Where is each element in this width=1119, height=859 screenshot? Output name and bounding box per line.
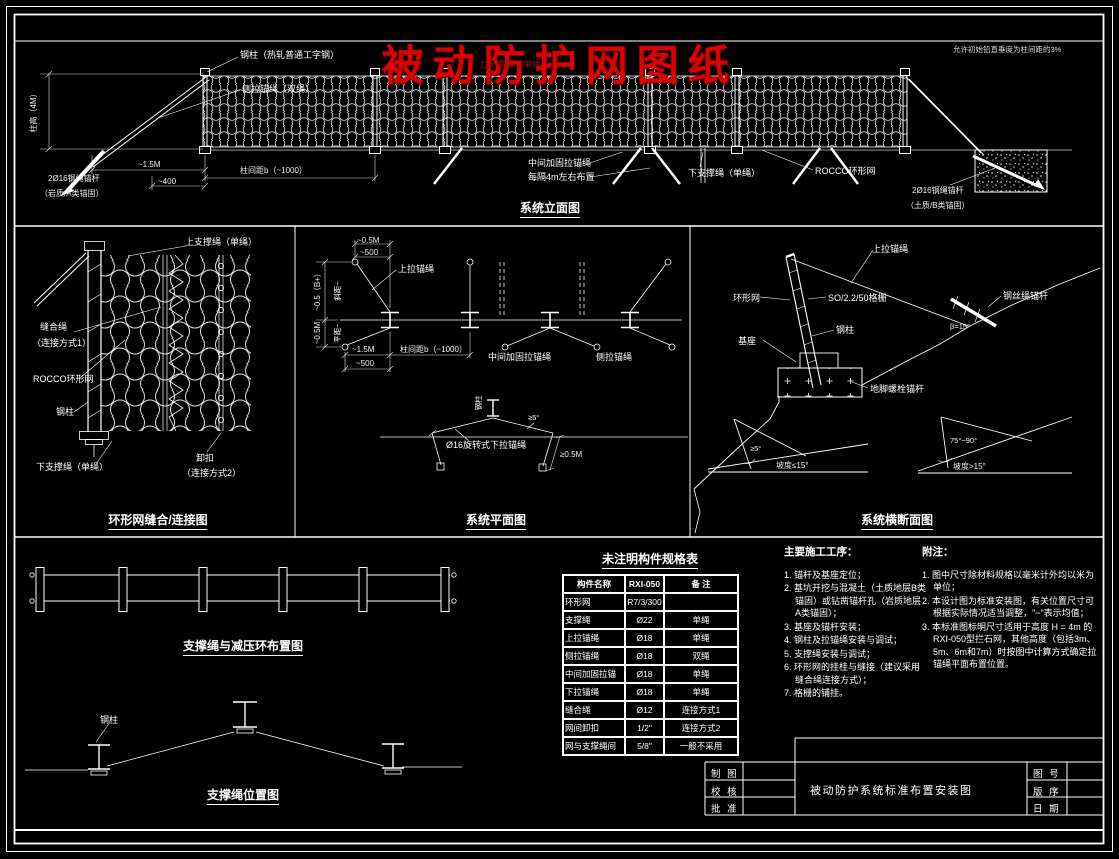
elev-anchor-right-2: （土质/B类锚固） <box>906 201 970 211</box>
construction-item: 6. 环形网的挂桂与缝接（建议采用缝合绳连接方式）； <box>784 661 926 686</box>
plan-title: 系统平面图 <box>466 511 526 530</box>
tb-no-label: 图 号 <box>1033 766 1061 780</box>
sect-net-label: 环形网 <box>733 293 760 303</box>
table-cell-note: 单绳 <box>664 629 738 647</box>
support-layout-title: 支撑绳与减压环布置图 <box>183 637 303 656</box>
sect-beta-label: β=15° <box>950 322 970 332</box>
table-cell-spec: 1/2" <box>625 719 664 737</box>
elev-anchor-left-1: 2Ø16钢绳锚杆 <box>48 174 100 184</box>
sect-post-label: 钢柱 <box>836 325 854 335</box>
tb-rev-label: 版 序 <box>1033 784 1061 798</box>
sect-tri-right-angle: 75°~90° <box>950 436 977 446</box>
table-cell-name: 中间加固拉锚绳 <box>563 665 625 683</box>
table-cell-note: 连接方式1 <box>664 701 738 719</box>
table-cell-name: 支撑绳 <box>563 611 625 629</box>
table-cell-note: 一般不采用 <box>664 737 738 755</box>
tb-check-label: 校 核 <box>711 784 739 798</box>
tolerance-note: 允许初始铅直垂度为柱间距的3% <box>953 44 1061 55</box>
notes-list: 1. 图中尺寸除材料规格以毫米计外均以米为单位；2. 本设计图为标准安装图，有关… <box>922 569 1102 671</box>
ring-net-label: ROCCO环形网 <box>33 374 94 384</box>
table-cell-name: 网与支撑绳间卸扣 <box>563 737 625 755</box>
elev-dim-15m: ~1.5M <box>138 160 160 170</box>
construction-item: 7. 格栅的铺挂。 <box>784 687 926 700</box>
table-cell-note: 单绳 <box>664 611 738 629</box>
plan-span-dim: 柱间距b（~1000） <box>400 345 467 355</box>
table-cell-spec: 5/8" <box>625 737 664 755</box>
table-cell-spec: Ø18 <box>625 665 664 683</box>
plan-swivel-anchor-label: Ø16旋转式下拉锚绳 <box>446 440 526 450</box>
plan-dim-left-upper-inner: 斜距~ <box>333 269 343 313</box>
sect-title: 系统横断面图 <box>861 511 933 530</box>
plan-offset-dim: ≥0.5M <box>560 450 582 460</box>
ring-upper-rope-label: 上支撑绳（单绳） <box>185 237 257 247</box>
ring-title: 环形网缝合/连接图 <box>108 511 207 530</box>
elev-height-dim: 柱高（4M） <box>29 79 39 143</box>
elev-side-anchor-label: 侧拉锚绳（双绳） <box>242 84 314 94</box>
table-cell-spec: Ø12 <box>625 701 664 719</box>
spec-table-title: 未注明构件规格表 <box>602 550 698 569</box>
ring-seam-rope-label: 缝合绳 <box>40 322 67 332</box>
tb-date-label: 日 期 <box>1033 801 1061 815</box>
sect-tri-right-slope: 坡度>15° <box>953 462 986 472</box>
ring-shackle-label: 卸扣 <box>196 453 214 463</box>
table-cell-name: 上拉锚绳 <box>563 629 625 647</box>
tb-drawing-title: 被动防护系统标准布置安装图 <box>810 782 973 798</box>
spec-table: 构件名称RXI-050备 注环形网R7/3/300支撑绳Ø22单绳上拉锚绳Ø18… <box>562 574 739 756</box>
ring-shackle-method-label: （连接方式2） <box>182 468 241 478</box>
cad-drawing-sheet: 被动防护网图纸 上支撑绳（单绳） 允许初始铅直垂度为柱间距的3% 钢柱（热轧普通… <box>0 0 1119 859</box>
sect-wire-anchor-label: 钢丝绳锚杆 <box>1003 291 1048 301</box>
support-post-label: 钢柱 <box>100 715 118 725</box>
note-item: 2. 本设计图为标准安装图，有关位置尺寸可根据实际情况适当调整，"~"表示均值； <box>922 595 1102 620</box>
ring-post-label: 钢柱 <box>56 407 74 417</box>
plan-dim-top-mm: ~500 <box>360 248 378 258</box>
construction-heading: 主要施工工序： <box>784 546 926 559</box>
plan-dim-bottom-mm: ~500 <box>356 359 374 369</box>
elev-mid-anchor-1: 中间加固拉锚绳 <box>528 158 591 168</box>
note-item: 3. 本标准图标明尺寸适用于高度 H = 4m 的RXI-050型拦石网，其他高… <box>922 621 1102 671</box>
elev-mid-anchor-2: 每隔4m左右布置 <box>528 172 595 182</box>
table-cell-name: 网间卸扣 <box>563 719 625 737</box>
notes: 附注： 1. 图中尺寸除材料规格以毫米计外均以米为单位；2. 本设计图为标准安装… <box>922 546 1102 672</box>
table-header-cell: RXI-050 <box>625 575 664 593</box>
table-cell-spec: Ø18 <box>625 629 664 647</box>
upper-support-rope-label: 上支撑绳（单绳） <box>478 57 550 70</box>
table-cell-note <box>664 593 738 611</box>
note-item: 1. 图中尺寸除材料规格以毫米计外均以米为单位； <box>922 569 1102 594</box>
table-cell-note: 单绳 <box>664 683 738 701</box>
tb-made-label: 制 图 <box>711 766 739 780</box>
page-title: 被动防护网图纸 <box>381 32 738 93</box>
plan-dim-bottom-m: ~1.5M <box>352 345 374 355</box>
table-cell-note: 单绳 <box>664 665 738 683</box>
construction-steps: 主要施工工序： 1. 锚杆及基座定位；2. 基坑开挖与混凝土（土质地层B类锚固）… <box>784 546 926 701</box>
table-cell-note: 连接方式2 <box>664 719 738 737</box>
table-cell-name: 环形网 <box>563 593 625 611</box>
table-cell-spec: Ø18 <box>625 647 664 665</box>
ring-lower-rope-label: 下支撑绳（单绳） <box>36 462 108 472</box>
construction-item: 5. 支撑绳安装与调试； <box>784 648 926 661</box>
table-header-cell: 构件名称 <box>563 575 625 593</box>
construction-item: 2. 基坑开挖与混凝土（土质地层B类锚固）或钻凿锚杆孔（岩质地层A类锚固）； <box>784 582 926 620</box>
table-cell-note: 双绳 <box>664 647 738 665</box>
construction-item: 1. 锚杆及基座定位； <box>784 569 926 582</box>
sect-base-anchor-label: 地脚螺栓锚杆 <box>870 384 924 394</box>
elev-title: 系统立面图 <box>520 199 580 218</box>
elev-lower-rope-label: 下支撑绳（单绳） <box>688 168 760 178</box>
plan-dim-left-lower: ~0.5M <box>313 309 323 357</box>
table-cell-name: 侧拉锚绳 <box>563 647 625 665</box>
ring-seam-method-label: （连接方式1） <box>32 338 91 348</box>
construction-list: 1. 锚杆及基座定位；2. 基坑开挖与混凝土（土质地层B类锚固）或钻凿锚杆孔（岩… <box>784 569 926 700</box>
elev-anchor-right-1: 2Ø16钢绳锚杆 <box>912 186 964 196</box>
sect-base-label: 基座 <box>738 336 756 346</box>
plan-mid-anchor-label: 中间加固拉锚绳 <box>488 352 551 362</box>
construction-item: 4. 钢柱及拉锚绳安装与调试； <box>784 634 926 647</box>
tb-approve-label: 批 准 <box>711 801 739 815</box>
sect-tri-left-slope: 坡度≤15° <box>776 461 809 471</box>
sect-tri-left-angle: ≥5° <box>750 444 761 454</box>
plan-side-anchor-label: 侧拉锚绳 <box>596 352 632 362</box>
table-cell-spec: R7/3/300 <box>625 593 664 611</box>
elev-span-dim: 柱间距b（~1000） <box>240 166 307 176</box>
plan-dim-left-lower-inner: 平距~ <box>333 315 343 351</box>
elev-anchor-left-2: （岩质/A类锚固） <box>40 189 104 199</box>
drawing-linework <box>0 0 1119 859</box>
table-cell-spec: Ø18 <box>625 683 664 701</box>
table-header-cell: 备 注 <box>664 575 738 593</box>
elev-post-label: 钢柱（热轧普通工字钢） <box>240 50 339 60</box>
table-cell-name: 下拉锚绳 <box>563 683 625 701</box>
plan-angle-label: ≥5° <box>528 413 539 423</box>
plan-post-label: 钢柱 <box>474 388 484 418</box>
support-position-title: 支撑绳位置图 <box>207 786 279 805</box>
notes-heading: 附注： <box>922 546 1102 559</box>
elev-net-label: ROCCO环形网 <box>815 166 876 176</box>
construction-item: 3. 基座及锚杆安装； <box>784 621 926 634</box>
table-cell-name: 缝合绳 <box>563 701 625 719</box>
elev-dim-400: ~400 <box>158 177 176 187</box>
sect-mesh-spec-label: SO/2.2/50格栅 <box>828 293 887 303</box>
plan-dim-top-m: ~0.5M <box>357 236 379 246</box>
sect-upper-anchor-label: 上拉锚绳 <box>872 244 908 254</box>
plan-upper-anchor-label: 上拉锚绳 <box>398 264 434 274</box>
table-cell-spec: Ø22 <box>625 611 664 629</box>
